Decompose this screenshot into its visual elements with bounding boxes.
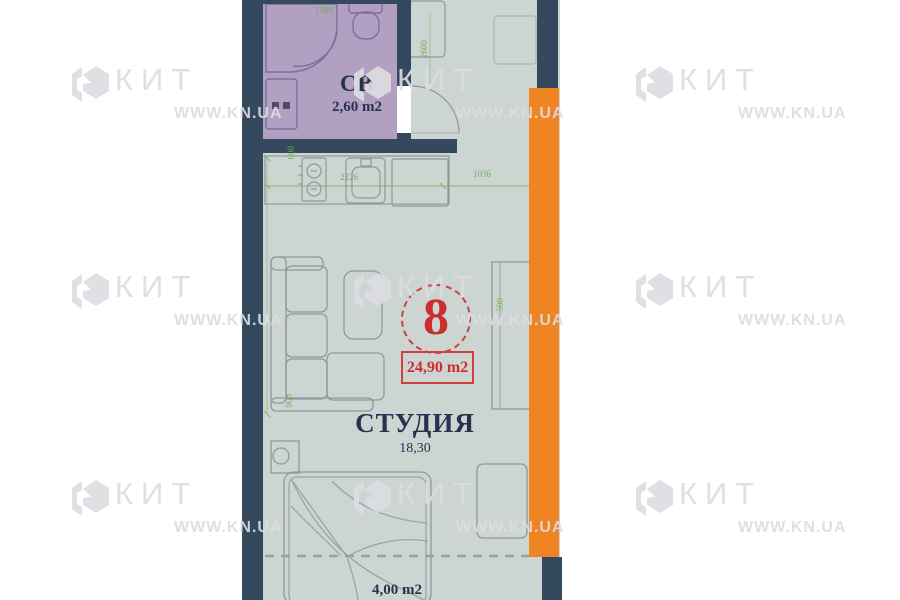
dim-kitchen-left: 2226 xyxy=(340,172,358,182)
studio-label: СТУДИЯ xyxy=(348,409,482,437)
washer-door-icon xyxy=(283,102,290,109)
unit-number: 8 xyxy=(423,292,449,344)
wall-bath-right-upper xyxy=(397,0,411,88)
wall-right-top xyxy=(537,0,558,88)
dim-wardrobe: 500 xyxy=(495,298,505,312)
bathroom-area xyxy=(263,0,397,139)
dim-kitchen-depth: 600 xyxy=(286,146,296,160)
balcony-area-label: 4,00 m2 xyxy=(362,583,432,599)
wall-bath-bottom xyxy=(242,139,457,153)
bathroom-area-label: 2,60 m2 xyxy=(314,100,400,116)
wall-right-bottom xyxy=(542,557,562,600)
balcony-glazing-strip xyxy=(529,88,559,557)
wall-left xyxy=(242,0,263,600)
dim-bath-width: 1586 xyxy=(315,5,333,15)
dim-entry: 2600 xyxy=(419,40,429,58)
unit-total-area: 24,90 m2 xyxy=(407,359,468,377)
dim-kitchen-right: 1036 xyxy=(473,169,491,179)
bathroom-label: СВ xyxy=(318,72,396,96)
wall-top xyxy=(242,0,411,4)
unit-area-box: 24,90 m2 xyxy=(401,351,474,384)
washer-knob-icon xyxy=(272,102,279,109)
unit-number-circle: 8 xyxy=(401,284,471,354)
studio-area-label: 18,30 xyxy=(348,442,482,457)
floorplan-screenshot: СВ 2,60 m2 8 24,90 m2 СТУДИЯ 18,30 4,00 … xyxy=(0,0,900,600)
dim-sofa: 900 xyxy=(284,394,294,408)
